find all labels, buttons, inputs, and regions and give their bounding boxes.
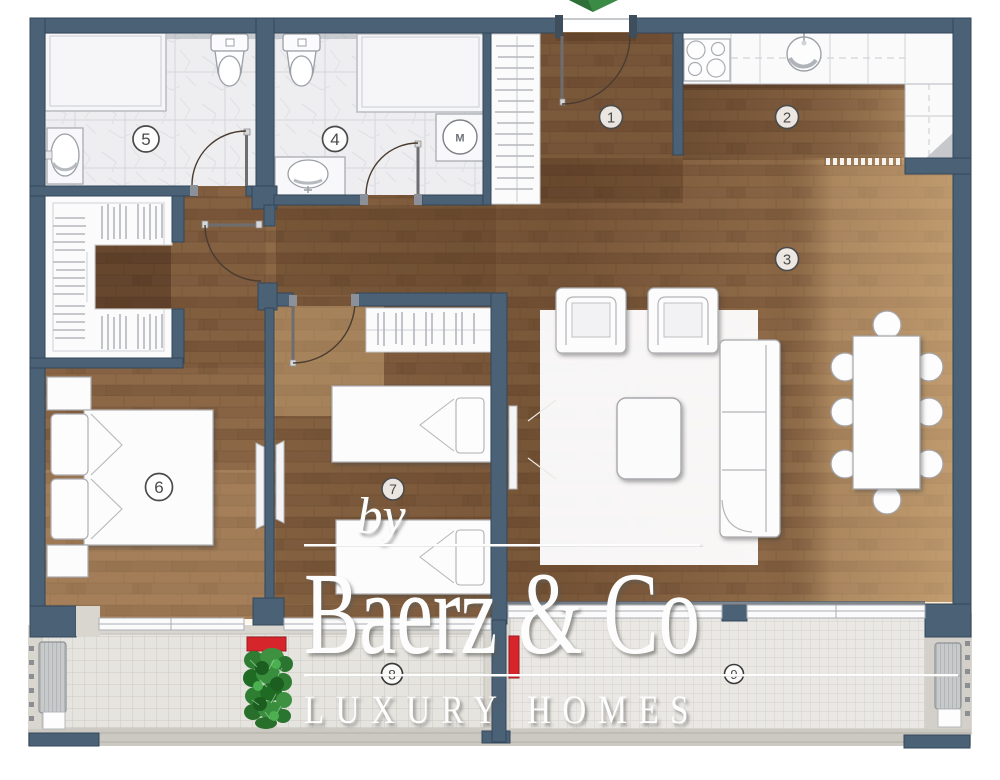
svg-text:by: by [356,488,406,545]
svg-text:6: 6 [154,478,163,497]
svg-text:M: M [455,133,464,145]
svg-text:LUXURY HOMES: LUXURY HOMES [304,687,700,732]
svg-text:5: 5 [141,130,150,149]
svg-text:3: 3 [783,252,791,269]
svg-text:1: 1 [607,110,615,127]
svg-text:Baerz & Co: Baerz & Co [304,548,700,679]
svg-text:4: 4 [330,130,339,149]
svg-text:2: 2 [783,110,791,127]
